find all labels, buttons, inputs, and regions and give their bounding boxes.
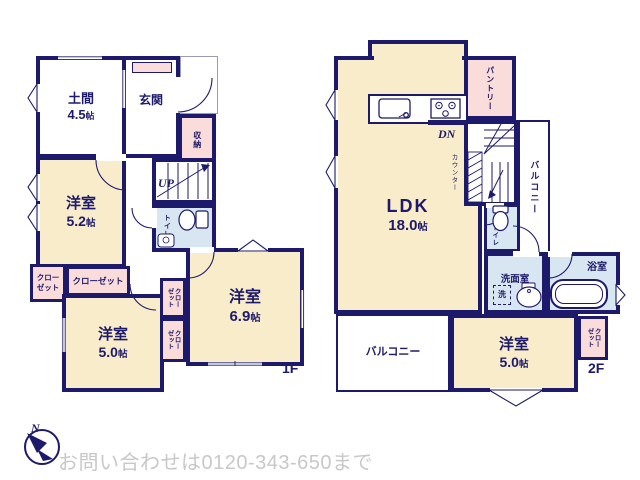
closet-mid2-1f: クローゼット <box>160 318 186 362</box>
closet-small-1f: クロー ゼット <box>30 264 66 302</box>
closet-mid1-1f: クローゼット <box>160 278 186 318</box>
bath-label: 浴室 <box>564 262 630 274</box>
balcony-side-label: バルコニー <box>529 160 540 215</box>
room-pantry-2f: パントリー <box>464 56 516 120</box>
door-arc-toilet-1f <box>132 208 152 228</box>
closet-mid1-line1: クロー <box>173 288 180 308</box>
room-50-1f-size: 5.0 <box>99 344 118 361</box>
room-doma-1f: 土間 4.5帖 <box>36 56 126 158</box>
washing-machine-icon: 洗 <box>493 285 511 305</box>
room-52-size: 5.2 <box>67 213 86 230</box>
entrance-porch <box>180 56 218 114</box>
room-50-1f-unit: 帖 <box>118 349 128 360</box>
closet-mid1-line2: ゼット <box>166 288 173 308</box>
room-doma-label: 土間 <box>68 91 94 107</box>
ldk-size: 18.0 <box>388 217 417 234</box>
closet-small-line2: ゼット <box>37 283 60 293</box>
closet-2f-line1: クロー <box>593 328 600 348</box>
room-52-1f: 洋室 5.2帖 <box>36 156 126 268</box>
floor-label-1f: 1F <box>282 360 298 376</box>
stairs-up-label: UP <box>158 176 174 190</box>
stairs-2f <box>464 120 518 206</box>
closet-2f-line2: ゼット <box>586 328 593 348</box>
room-69-size: 6.9 <box>229 308 250 326</box>
closet-top-1f: クローゼット <box>66 266 130 296</box>
closet-mid2-line1: クロー <box>173 330 180 350</box>
compass-n-label: N <box>30 421 41 435</box>
kitchen-wall-stub <box>428 120 468 125</box>
contact-text: お問い合わせは0120-343-650まで <box>58 446 373 475</box>
stairs-1f: UP <box>152 158 216 204</box>
room-50-2f-size: 5.0 <box>500 354 519 371</box>
stairs-down-label: DN <box>438 127 455 142</box>
room-shuno-label: 収納 <box>192 131 202 149</box>
room-52-unit: 帖 <box>86 218 96 229</box>
closet-small-line1: クロー <box>37 273 60 283</box>
room-toilet-2f: トイレ <box>484 204 520 252</box>
closet-2f: クローゼット <box>578 316 608 360</box>
senmen-label: 洗面室 <box>488 274 542 285</box>
closet-mid2-line2: ゼット <box>166 330 173 350</box>
room-toilet-1f: トイレ <box>152 204 216 252</box>
closet-top-label: クローゼット <box>72 276 123 286</box>
toilet-2f-label: トイレ <box>490 224 498 247</box>
counter-label: カウンター <box>448 154 458 206</box>
room-genkan-label: 玄関 <box>139 93 163 107</box>
room-50-2f-label: 洋室 <box>499 336 529 354</box>
room-50-2f: 洋室 5.0帖 <box>450 314 578 392</box>
room-bath-2f: 浴室 <box>546 252 620 314</box>
floorplan-page: { "meta": {"document_type": "floor-plan"… <box>0 0 640 480</box>
room-69-1f: 洋室 6.9帖 <box>186 248 304 366</box>
toilet-1f-label: トイレ <box>162 214 170 238</box>
room-52-label: 洋室 <box>66 195 96 213</box>
room-senmen-2f: 洗面室 洗 <box>484 252 546 314</box>
balcony-side-2f: バルコニー <box>518 120 550 254</box>
floor-label-2f: 2F <box>588 360 604 376</box>
ldk-unit: 帖 <box>418 218 428 233</box>
ldk-label: LDK <box>334 196 482 217</box>
room-50-1f: 洋室 5.0帖 <box>62 294 164 392</box>
balcony-bottom-2f: バルコニー <box>336 314 450 392</box>
room-50-1f-label: 洋室 <box>98 326 128 344</box>
balcony-bottom-label: バルコニー <box>366 346 421 359</box>
compass-north-icon: N <box>25 421 59 464</box>
room-69-unit: 帖 <box>250 313 260 325</box>
room-doma-unit: 帖 <box>86 111 95 122</box>
genkan-shoe-closet <box>132 62 172 73</box>
room-doma-size: 4.5 <box>68 107 86 123</box>
ldk-label-block: LDK 18.0帖 <box>334 196 482 234</box>
ldk-seam-patch <box>374 56 462 66</box>
room-69-label: 洋室 <box>229 288 261 307</box>
pantry-label: パントリー <box>485 66 495 111</box>
room-50-2f-unit: 帖 <box>519 359 529 370</box>
room-genkan-1f: 玄関 <box>122 56 180 158</box>
